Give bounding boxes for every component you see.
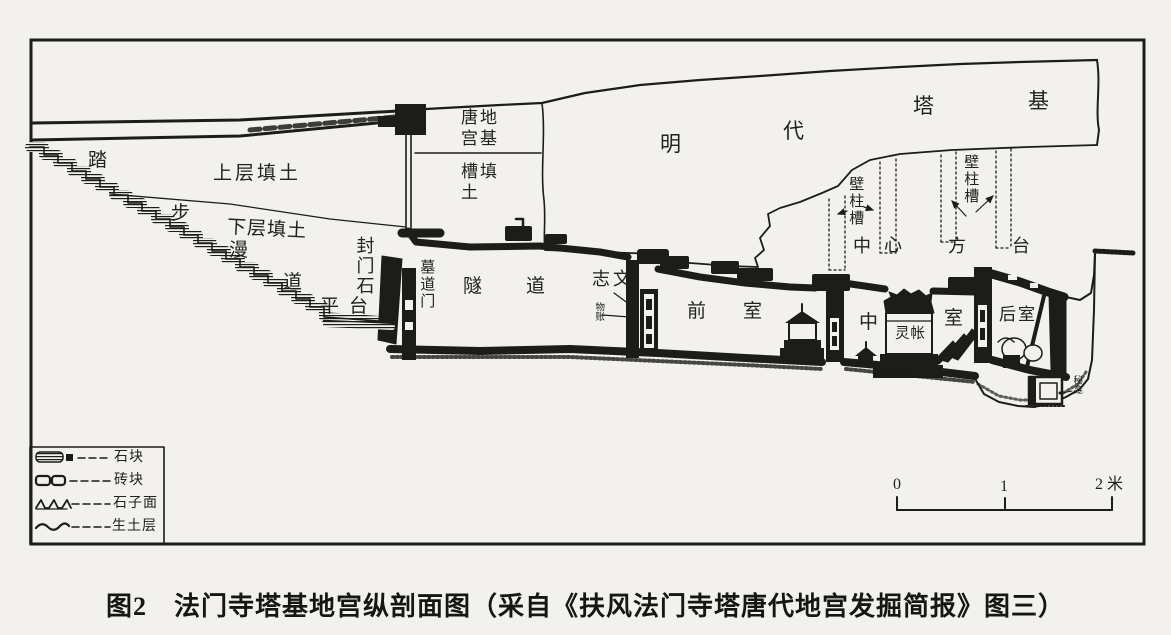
label-platform: 平台 [320, 297, 378, 318]
scale-bar [897, 497, 1112, 510]
label-wall-pillar-slot-right: 壁柱槽 [962, 154, 978, 205]
label-passage-door: 墓道门 [418, 259, 434, 310]
label-door-sealing-stone: 封门石 [354, 236, 373, 296]
virgin-soil-symbol [36, 524, 110, 530]
section-drawing [0, 0, 1171, 635]
label-middle-chamber-zhong: 中 [859, 313, 878, 334]
label-central-tai: 台 [1012, 237, 1030, 256]
label-stair-bu: 步 [171, 204, 190, 225]
label-wall-pillar-slot-left: 壁柱槽 [847, 176, 863, 227]
label-dai: 代 [783, 120, 804, 143]
section-linework [30, 60, 1133, 544]
legend-label-stone: 石块 [114, 450, 144, 465]
scale-tick-2m: 2 米 [1095, 476, 1123, 493]
label-tunnel: 隧道 [463, 277, 589, 298]
scale-tick-0: 0 [893, 476, 901, 493]
label-spirit-canopy: 灵帐 [895, 327, 926, 343]
label-front-chamber: 前室 [687, 302, 799, 323]
label-tang-base-2: 宫基 [461, 130, 499, 148]
legend-label-brick: 砖块 [114, 473, 144, 488]
gravel-surface-symbol [36, 500, 110, 509]
brick-symbol [36, 476, 110, 485]
label-trench-fill-2: 土 [461, 184, 480, 202]
legend-label-soil: 生土层 [112, 519, 157, 534]
label-ramp-dao: 道 [283, 273, 302, 294]
label-upper-fill: 上层填土 [213, 164, 301, 185]
legend-label-gravel: 石子面 [113, 496, 158, 511]
label-secret-niche: 秘龛 [1071, 375, 1081, 394]
label-ta-pagoda: 塔 [913, 95, 934, 118]
label-epitaph-stele: 志文 [592, 270, 634, 289]
label-central-xin: 心 [884, 236, 902, 255]
label-ramp-man: 漫 [229, 241, 248, 262]
label-lower-fill: 下层填土 [227, 218, 308, 243]
label-middle-chamber-shi: 室 [944, 309, 963, 330]
scale-tick-1: 1 [1000, 478, 1008, 495]
label-trench-fill-1: 槽填 [461, 163, 499, 181]
label-ji-base: 基 [1028, 90, 1049, 113]
label-tang-base-1: 唐地 [461, 109, 499, 127]
label-ming: 明 [660, 133, 681, 156]
label-central-fang: 方 [948, 237, 966, 256]
label-central-zhong: 中 [853, 237, 871, 256]
figure-caption: 图2 法门寺塔基地宫纵剖面图（采自《扶风法门寺塔唐代地宫发掘简报》图三） [0, 586, 1171, 623]
label-stair-ta: 踏 [88, 151, 107, 172]
stone-block-symbol [36, 452, 110, 462]
label-inventory-stele: 物账 [593, 302, 603, 321]
label-rear-chamber: 后室 [999, 306, 1037, 324]
scanned-figure-page: 踏 步 上层填土 下层填土 漫 道 平台 封门石 墓道门 隧道 唐地 宫基 槽填… [0, 0, 1171, 635]
